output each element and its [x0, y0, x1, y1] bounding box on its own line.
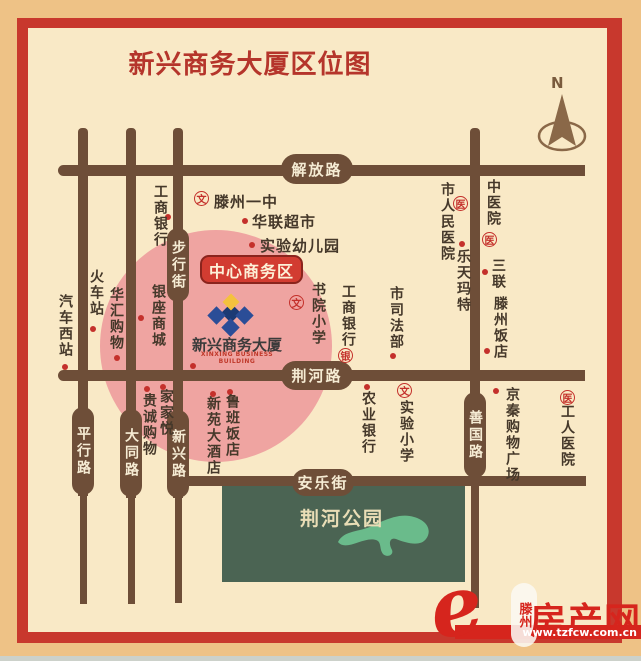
poi-label: 农业银行: [358, 391, 378, 455]
road-label-jinghe: 荆河路: [281, 361, 353, 390]
poi-dot: [493, 388, 499, 394]
school-icon: 文: [194, 191, 209, 206]
poi-label: 华联超市: [252, 211, 316, 232]
poi-label: 华汇购物: [106, 287, 126, 351]
road-pingxing-south: [80, 494, 87, 604]
poi-label: 家家悦: [156, 389, 176, 437]
poi-label: 新苑大酒店: [203, 396, 223, 476]
watermark-url: www.tzfcw.com.cn: [455, 626, 637, 639]
poi-label: 银座商城: [148, 284, 168, 348]
logo-diamond-right: [235, 306, 253, 324]
bottom-edge-strip: [0, 656, 641, 661]
hospital-glyph: 医: [456, 196, 466, 211]
location-map: 荆河公园 解放路 荆河路 安乐街 步行街 平行路 大同路 新兴路 善国路 中心商…: [0, 0, 641, 661]
poi-dot: [364, 384, 370, 390]
poi-label: 实验幼儿园: [260, 235, 340, 256]
school-icon: 文: [397, 383, 412, 398]
page-title: 新兴商务大厦区位图: [40, 44, 460, 81]
poi-label: 滕州一中: [214, 191, 278, 212]
poi-dot: [62, 364, 68, 370]
school-icon: 文: [289, 295, 304, 310]
hospital-glyph: 医: [563, 390, 573, 405]
bank-glyph: 银: [341, 348, 351, 363]
park-name: 荆河公园: [300, 504, 384, 531]
hospital-glyph: 医: [485, 232, 495, 247]
poi-label: 工人医院: [557, 404, 577, 468]
poi-label: 三联: [488, 258, 508, 290]
road-datong-south: [128, 496, 135, 604]
cbd-banner: 中心商务区: [200, 255, 303, 284]
bank-icon: 银: [338, 348, 353, 363]
poi-label: 工商银行: [150, 184, 170, 248]
road-label-anle: 安乐街: [292, 469, 354, 496]
poi-dot: [242, 218, 248, 224]
poi-label: 书院小学: [308, 282, 328, 346]
poi-label: 中医院: [483, 179, 503, 227]
poi-label: 工商银行: [338, 284, 358, 348]
road-label-pingxing: 平行路: [72, 407, 94, 495]
compass-north-label: N: [551, 74, 564, 92]
school-glyph: 文: [400, 383, 410, 398]
compass-arrow-icon: [532, 92, 592, 156]
poi-label: 实验小学: [396, 400, 416, 464]
building-name-en: XINXING BUSINESS BUILDING: [184, 351, 290, 365]
poi-dot: [390, 353, 396, 359]
road-xinxing-south: [175, 497, 182, 603]
poi-dot: [144, 386, 150, 392]
road-label-jiefang: 解放路: [281, 154, 353, 184]
poi-label: 汽车西站: [55, 294, 75, 358]
poi-label: 京秦购物广场: [502, 387, 522, 483]
poi-dot: [459, 241, 465, 247]
poi-label: 鲁班饭店: [222, 394, 242, 458]
building-marker-dot: [190, 363, 196, 369]
hospital-icon: 医: [482, 232, 497, 247]
poi-label: 滕州饭店: [490, 296, 510, 360]
poi-dot: [114, 355, 120, 361]
poi-dot: [138, 315, 144, 321]
logo-diamond-left: [207, 306, 225, 324]
poi-dot: [90, 326, 96, 332]
road-label-shanguo: 善国路: [464, 392, 486, 478]
school-glyph: 文: [197, 191, 207, 206]
poi-label: 市司法部: [386, 286, 406, 350]
poi-label: 火车站: [86, 269, 106, 317]
building-logo: [205, 296, 257, 338]
road-anle: [178, 476, 586, 486]
poi-dot: [249, 242, 255, 248]
hospital-icon: 医: [560, 390, 575, 405]
school-glyph: 文: [292, 295, 302, 310]
road-label-buxingjie: 步行街: [167, 228, 189, 302]
poi-label: 乐天玛特: [453, 249, 473, 313]
